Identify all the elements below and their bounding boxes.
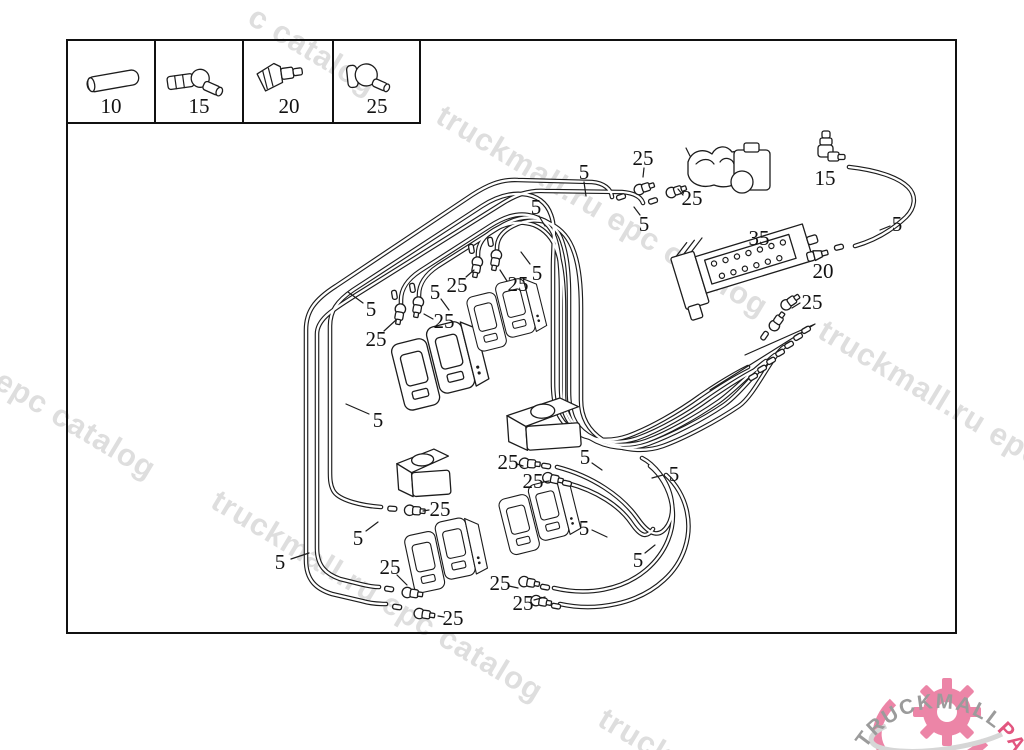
connector-25-panel (779, 292, 802, 312)
label-leader-line (346, 404, 369, 414)
legend-item-elbow-connector: 15 (166, 66, 225, 118)
legend-item-straight-connector: 20 (256, 60, 304, 118)
part-label-25: 25 (633, 146, 654, 170)
part-label-25: 25 (434, 309, 455, 333)
part-label-25: 25 (490, 571, 511, 595)
part-label-5: 5 (669, 462, 680, 486)
part-label-15: 15 (815, 166, 836, 190)
switch-blank-single (396, 448, 451, 498)
part-label-35: 35 (749, 226, 770, 250)
part-label-20: 20 (813, 259, 834, 283)
switch-wide-single (506, 397, 581, 452)
connector-25-harness (767, 310, 787, 333)
label-leader-line (424, 314, 433, 319)
label-leader-line (592, 530, 607, 537)
watermark-text: truckmall.ru epc catalog (812, 313, 1024, 539)
connector-25-s2-b (489, 249, 503, 271)
connector-25-s2-a (470, 256, 484, 278)
parts-diagram: c catalogtruckmall.ru epc catalogtruckma… (0, 0, 1024, 750)
part-label-25: 25 (498, 450, 519, 474)
part-label-5: 5 (531, 195, 542, 219)
part-label-25: 25 (523, 469, 544, 493)
part-label-5: 5 (275, 550, 286, 574)
watermark-text: truckmall (592, 701, 736, 750)
part-label-25: 25 (513, 591, 534, 615)
part-label-25: 25 (366, 327, 387, 351)
part-label-25: 25 (380, 555, 401, 579)
label-leader-line (521, 252, 530, 264)
legend-num-20: 20 (279, 94, 300, 118)
valve-15 (818, 131, 845, 161)
connector-25-s1-b (411, 296, 425, 318)
part-label-5: 5 (532, 261, 543, 285)
legend-num-15: 15 (189, 94, 210, 118)
part-label-5: 5 (353, 526, 364, 550)
connector-25-bracket-a (633, 180, 656, 196)
watermark-text: l epc catalog (0, 353, 163, 486)
legend-num-25: 25 (367, 94, 388, 118)
watermarks-layer: c catalogtruckmall.ru epc catalogtruckma… (0, 0, 1024, 750)
part-label-5: 5 (892, 212, 903, 236)
connector-25-s6-bottom-a (518, 576, 540, 590)
part-label-5: 5 (633, 548, 644, 572)
part-label-25: 25 (682, 186, 703, 210)
watermark-text: truckmall.ru epc catalog (205, 483, 549, 709)
part-label-5: 5 (366, 297, 377, 321)
part-label-5: 5 (639, 212, 650, 236)
part-label-5: 5 (373, 408, 384, 432)
connector-25-s3 (404, 505, 425, 517)
label-leader-line (366, 522, 378, 531)
part-label-5: 5 (579, 516, 590, 540)
part-label-5: 5 (579, 160, 590, 184)
part-label-25: 25 (508, 272, 529, 296)
part-label-25: 25 (802, 290, 823, 314)
part-label-5: 5 (580, 445, 591, 469)
connector-25-s6-top-a (519, 458, 540, 470)
legend-num-10: 10 (101, 94, 122, 118)
watermark-text: truckmall.ru epc catalog (430, 98, 774, 324)
part-label-5: 5 (430, 280, 441, 304)
label-leader-line (500, 270, 507, 281)
label-leader-line (645, 545, 655, 553)
part-label-25: 25 (447, 273, 468, 297)
switch-double-lower-left (402, 514, 490, 594)
legend-item-hose: 10 (86, 69, 140, 118)
part-label-25: 25 (443, 606, 464, 630)
part-label-25: 25 (430, 497, 451, 521)
label-leader-line (592, 463, 602, 470)
